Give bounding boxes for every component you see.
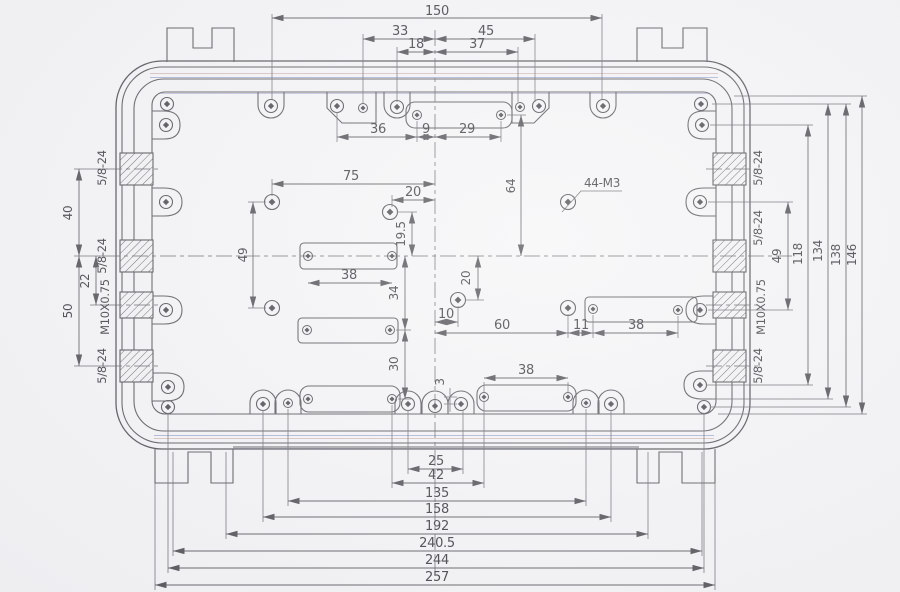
enclosure-drawing-canvas: 150 33 45 18 37 36 9 29 75 20 44-M3 64 4…: [0, 0, 900, 592]
dim-135: 135: [425, 486, 449, 501]
thread-left-1: 5/8-24: [95, 150, 109, 186]
dim-9: 9: [422, 122, 430, 137]
dim-19-5: 19.5: [394, 221, 408, 247]
dim-34: 34: [387, 286, 401, 301]
dim-146: 146: [845, 244, 859, 266]
dim-40: 40: [61, 206, 75, 221]
thread-left-4: 5/8-24: [95, 348, 109, 384]
extension-lines: [74, 14, 867, 590]
dim-244: 244: [425, 553, 449, 568]
dim-38-right: 38: [628, 318, 644, 333]
dim-42: 42: [428, 468, 444, 483]
dim-33: 33: [392, 24, 408, 39]
thread-right-2: 5/8-24: [751, 210, 765, 246]
connector-plates: [298, 102, 697, 412]
dim-240-5: 240.5: [419, 536, 455, 551]
dim-22: 22: [78, 274, 92, 289]
dim-60: 60: [494, 318, 510, 333]
dim-29: 29: [459, 122, 475, 137]
dim-37: 37: [469, 37, 485, 52]
top-mounting-tabs: [167, 28, 707, 62]
thread-right-4: 5/8-24: [751, 348, 765, 384]
dim-38-bottom: 38: [518, 363, 534, 378]
dim-64: 64: [504, 179, 518, 194]
dim-118: 118: [791, 243, 805, 265]
dim-150: 150: [425, 4, 449, 19]
m3-callout: 44-M3: [584, 176, 620, 190]
thread-right-3: M10X0.75: [754, 279, 768, 335]
threaded-port-blocks: [120, 153, 746, 382]
dim-134: 134: [811, 240, 825, 262]
centerlines: [104, 30, 796, 572]
dim-36: 36: [370, 122, 386, 137]
dim-30: 30: [387, 357, 401, 372]
dim-192: 192: [425, 519, 449, 534]
dim-25: 25: [428, 454, 444, 469]
scanned-engineering-drawing: 150 33 45 18 37 36 9 29 75 20 44-M3 64 4…: [0, 0, 900, 592]
dim-49-right: 49: [770, 249, 784, 264]
dim-49-left: 49: [236, 248, 250, 263]
dim-38-left: 38: [341, 268, 357, 283]
dim-11: 11: [573, 318, 589, 333]
dim-75: 75: [343, 169, 359, 184]
dim-20-mid: 20: [459, 271, 473, 286]
dim-10: 10: [438, 307, 454, 322]
dim-18: 18: [408, 37, 424, 52]
dim-3: 3: [433, 378, 447, 385]
dim-50: 50: [61, 304, 75, 319]
dim-20-top: 20: [405, 185, 421, 200]
thread-left-3: M10X0.75: [98, 279, 112, 335]
thread-right-1: 5/8-24: [751, 150, 765, 186]
thread-left-2: 5/8-24: [95, 238, 109, 274]
dim-257: 257: [425, 570, 449, 585]
dim-138: 138: [829, 244, 843, 266]
dim-158: 158: [425, 502, 449, 517]
